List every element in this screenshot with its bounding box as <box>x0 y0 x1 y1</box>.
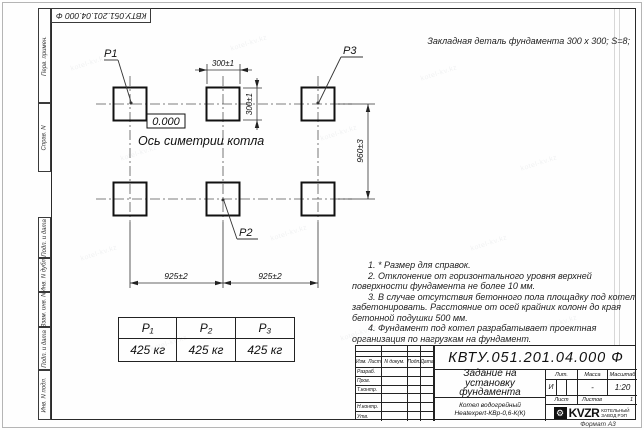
sheets-label: Листов <box>582 397 602 403</box>
pad-label-p2: Р2 <box>239 227 252 239</box>
dim-span-right: 925±2 <box>258 271 282 281</box>
kvzr-gear-icon: ⚙ <box>554 407 567 419</box>
product-name-line1: Котел водогрейный <box>459 402 521 410</box>
sig-cell <box>382 368 408 377</box>
load-table: Р₁ Р₂ Р₃ 425 кг 425 кг 425 кг <box>118 317 295 362</box>
sig-cell <box>421 368 434 377</box>
scale-value: 1:20 <box>608 380 637 396</box>
sig-cell <box>382 394 408 403</box>
document-title: Задание на установку фундамента <box>434 370 546 398</box>
dim-pad-width: 300±1 <box>212 59 234 68</box>
lit-header: Лит. <box>546 370 578 380</box>
change-row-spare <box>382 352 408 358</box>
sig-cell <box>382 403 408 412</box>
sig-cell <box>421 412 434 421</box>
lit-cell-2 <box>557 380 567 396</box>
dim-pad-height: 300±1 <box>245 93 254 115</box>
note-1: 1. * Размер для справок. <box>352 260 636 271</box>
sig-cell <box>408 412 421 421</box>
symmetry-axis-label: Ось симетрии котла <box>138 134 264 148</box>
sig-cell <box>408 403 421 412</box>
lit-value: И <box>546 380 557 396</box>
pad-label-p3: Р3 <box>343 45 357 57</box>
kvzr-logo: ⚙ KVZR КОТЕЛЬНЫЙ ЗАВОД РЭП <box>554 406 630 420</box>
sheets-value: 1 <box>630 397 633 403</box>
scale-header: Масштаб <box>608 370 637 380</box>
note-3: 3. В случае отсутствия бетонного пола пл… <box>352 292 636 324</box>
row-razrab: Разраб. <box>356 368 382 377</box>
foundation-pads <box>114 88 335 216</box>
col-header-izm-list: Изм. Лист <box>356 357 382 368</box>
change-row-spare <box>421 352 434 358</box>
load-table-value-p1: 425 кг <box>119 339 177 361</box>
sig-cell <box>382 386 408 394</box>
zero-level-value: 0.000 <box>152 116 180 128</box>
leader-lines <box>104 57 363 239</box>
load-table-header-p3: Р₃ <box>236 318 294 339</box>
sig-cell <box>408 394 421 403</box>
sig-cell <box>356 394 382 403</box>
sig-cell <box>382 412 408 421</box>
sig-cell <box>421 386 434 394</box>
load-table-value-p3: 425 кг <box>236 339 294 361</box>
row-prov: Пров. <box>356 377 382 386</box>
col-header-ndok: N докум. <box>382 357 408 368</box>
sig-cell <box>408 386 421 394</box>
load-table-header-p2: Р₂ <box>177 318 235 339</box>
kvzr-logo-text: KVZR <box>569 406 600 420</box>
sig-cell <box>421 403 434 412</box>
kvzr-sub-line2: ЗАВОД РЭП <box>601 413 627 418</box>
mass-value: - <box>578 380 608 396</box>
row-tkontr: Т.контр. <box>356 386 382 394</box>
change-row-spare <box>356 352 382 358</box>
mass-header: Масса <box>578 370 608 380</box>
row-utv: Утв. <box>356 412 382 421</box>
pad-label-p1: Р1 <box>104 48 117 60</box>
note-2: 2. Отклонение от горизонтального уровня … <box>352 271 636 292</box>
load-table-value-p2: 425 кг <box>177 339 235 361</box>
format-label: Формат А3 <box>560 421 636 428</box>
sig-cell <box>408 368 421 377</box>
sig-cell <box>408 377 421 386</box>
drawing-sheet: kotel-kv.kz kotel-kv.kz kotel-kv.kz kote… <box>0 0 644 430</box>
load-table-header-p1: Р₁ <box>119 318 177 339</box>
product-name-line2: Heatexpert-КВр-0,6-К(К) <box>454 410 525 418</box>
change-row-spare <box>408 352 421 358</box>
lit-cell-3 <box>567 380 578 396</box>
dim-row-spacing: 960±3 <box>355 139 365 163</box>
sig-cell <box>382 377 408 386</box>
title-block-doc-number: КВТУ.051.201.04.000 Ф <box>434 346 637 370</box>
title-block: КВТУ.051.201.04.000 Ф Изм. Лист N докум.… <box>355 345 636 420</box>
sig-cell <box>421 377 434 386</box>
technical-notes: 1. * Размер для справок. 2. Отклонение о… <box>352 260 636 344</box>
dim-span-left: 925±2 <box>164 271 188 281</box>
sheet-label: Лист <box>546 396 578 405</box>
row-nkontr: Н.контр. <box>356 403 382 412</box>
sig-cell <box>421 394 434 403</box>
col-header-data: Дата <box>421 357 434 368</box>
note-4: 4. Фундамент под котел разрабатывает про… <box>352 323 636 344</box>
